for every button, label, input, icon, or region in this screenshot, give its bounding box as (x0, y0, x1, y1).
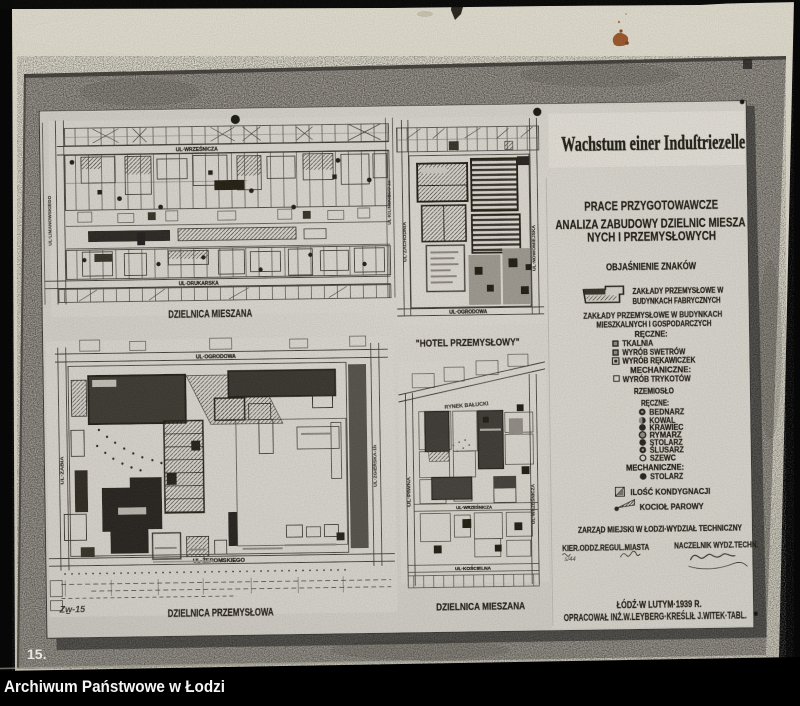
svg-text:Archiwum Państwowe w Łodzi: Archiwum Państwowe w Łodzi (4, 678, 225, 696)
svg-text:15.: 15. (27, 646, 46, 662)
